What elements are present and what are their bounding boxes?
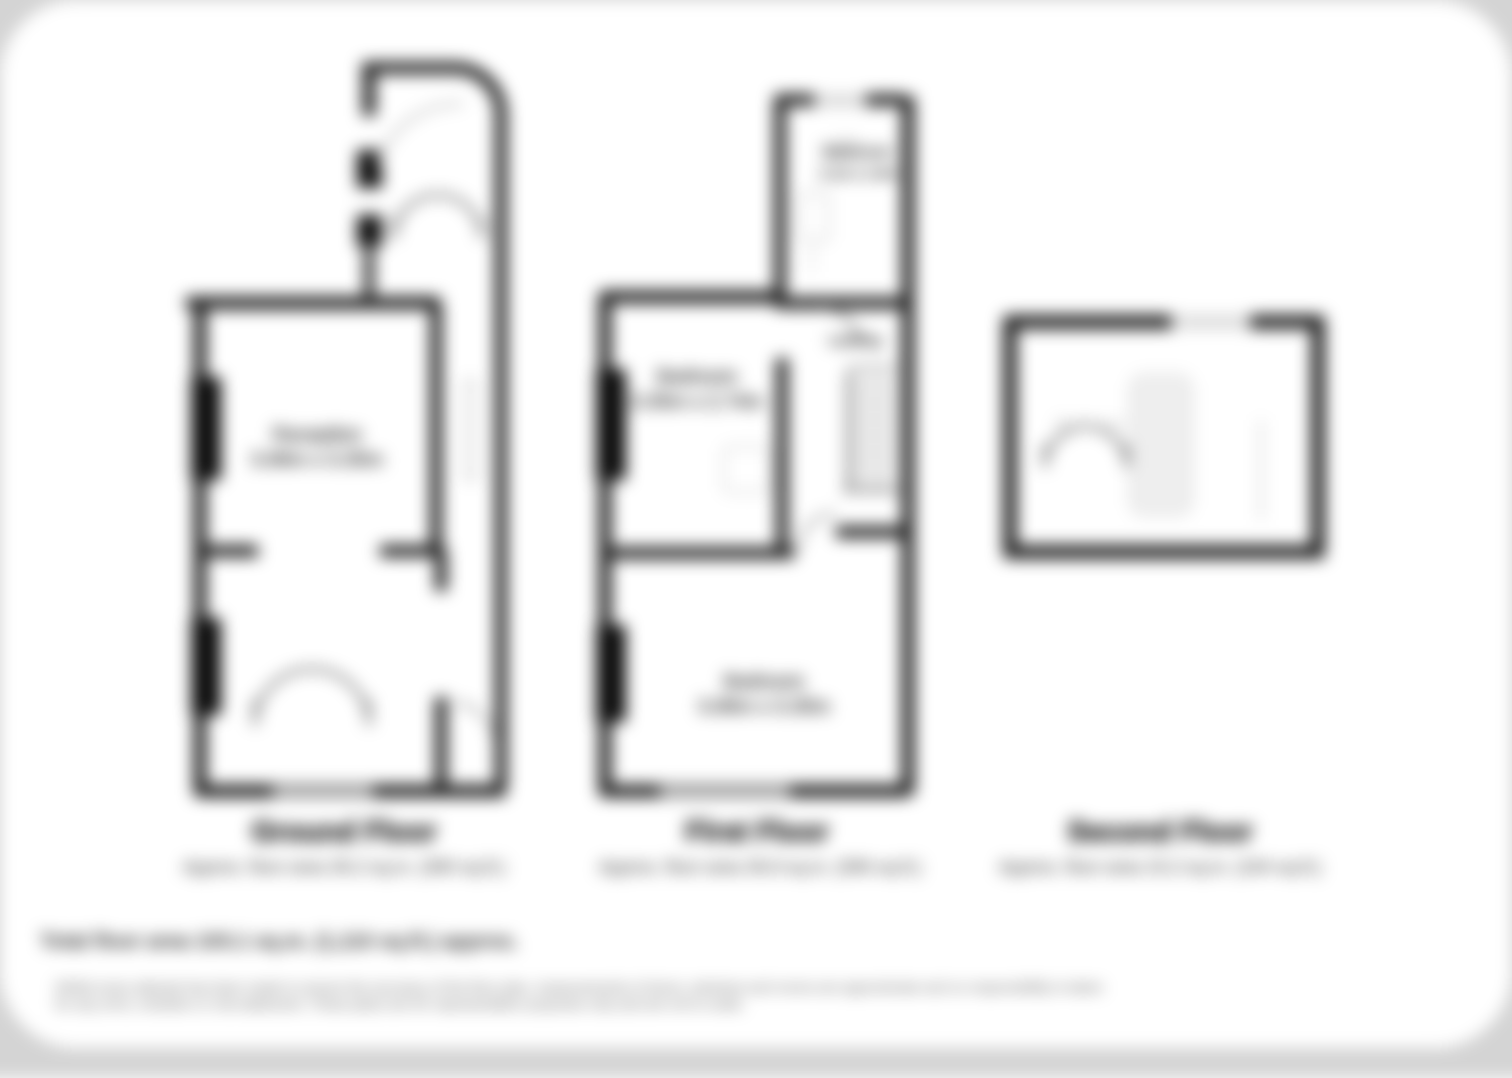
svg-text:2.1m x 1.8m: 2.1m x 1.8m: [819, 165, 896, 181]
svg-text:Bedroom: Bedroom: [723, 671, 804, 693]
svg-text:Approx. floor area 15.2 sq.m.: Approx. floor area 15.2 sq.m. (164 sq.ft…: [998, 857, 1321, 877]
svg-text:Total floor area 103.1 sq.m. (: Total floor area 103.1 sq.m. (1,110 sq.f…: [40, 930, 518, 953]
svg-text:for any error, omission or mis: for any error, omission or mis-statement…: [55, 996, 745, 1012]
svg-text:Reception: Reception: [272, 424, 362, 446]
svg-text:Landing: Landing: [828, 332, 881, 349]
svg-text:Whilst every attempt has been: Whilst every attempt has been made to en…: [55, 979, 1103, 995]
svg-text:Second Floor: Second Floor: [1067, 816, 1252, 848]
svg-text:Approx. floor area 36.8 sq.m.: Approx. floor area 36.8 sq.m. (396 sq.ft…: [598, 857, 921, 877]
svg-text:Bedroom: Bedroom: [1056, 415, 1125, 434]
svg-text:3.96m x 3.35m: 3.96m x 3.35m: [698, 696, 830, 718]
svg-text:Approx. floor area 36.2 sq.m.: Approx. floor area 36.2 sq.m. (390 sq.ft…: [182, 857, 505, 877]
svg-text:First Floor: First Floor: [685, 816, 828, 848]
svg-text:Bedroom: Bedroom: [656, 366, 737, 388]
svg-text:Ground Floor: Ground Floor: [251, 816, 436, 848]
svg-text:Bathroom: Bathroom: [822, 144, 891, 161]
svg-text:3.96m x 3.35m: 3.96m x 3.35m: [251, 449, 383, 471]
svg-text:3.35m x 2.74m: 3.35m x 2.74m: [631, 391, 763, 413]
